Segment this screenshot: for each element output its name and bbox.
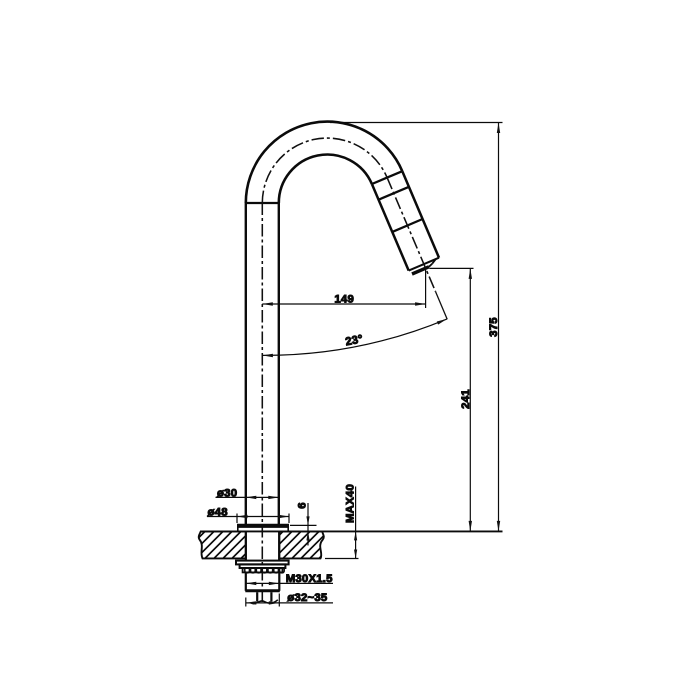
svg-text:ø30: ø30 [217, 487, 237, 499]
svg-text:ø32~35: ø32~35 [287, 592, 328, 604]
svg-text:M30X1.5: M30X1.5 [286, 573, 333, 585]
svg-text:241: 241 [460, 389, 472, 409]
svg-text:6: 6 [297, 502, 309, 509]
svg-text:MAX40: MAX40 [344, 484, 356, 523]
svg-text:375: 375 [488, 317, 500, 337]
svg-text:ø48: ø48 [208, 507, 228, 519]
svg-text:149: 149 [334, 294, 354, 306]
